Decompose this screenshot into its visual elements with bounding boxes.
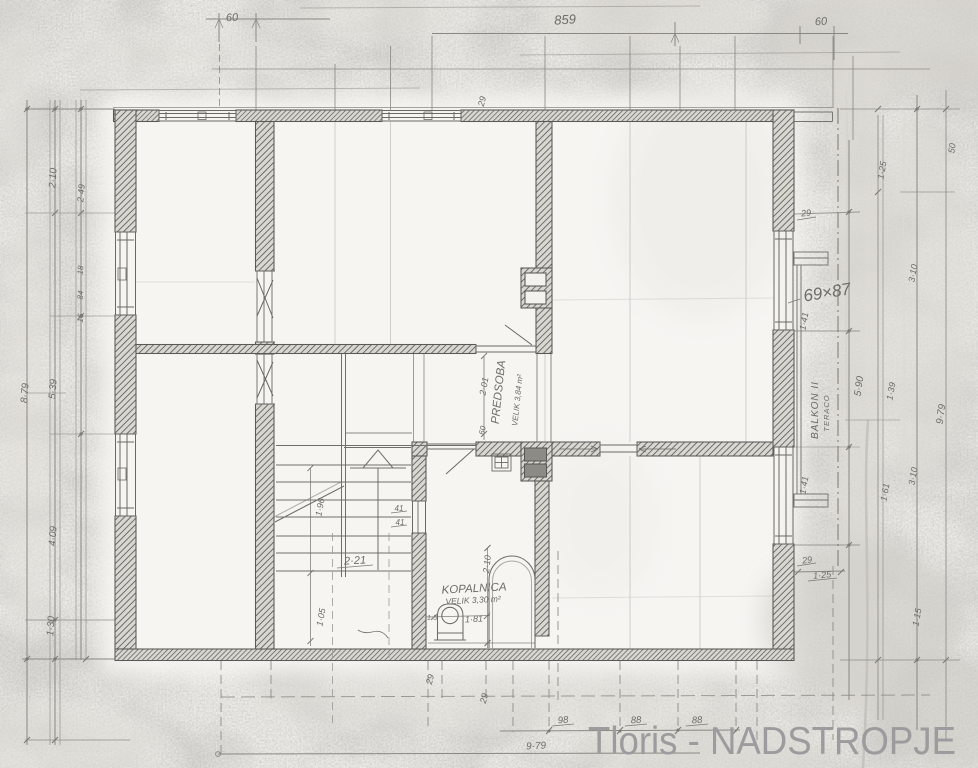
svg-text:2·49: 2·49: [75, 184, 87, 204]
svg-text:60: 60: [226, 12, 240, 25]
svg-text:859: 859: [554, 11, 577, 27]
svg-text:Tloris - NADSTROPJE: Tloris - NADSTROPJE: [588, 720, 956, 763]
svg-text:1·5: 1·5: [427, 615, 437, 622]
svg-text:9·79: 9·79: [526, 740, 547, 752]
svg-text:BALKON II: BALKON II: [810, 381, 821, 439]
svg-text:1·81: 1·81: [465, 614, 484, 625]
svg-text:TERACO: TERACO: [822, 394, 831, 431]
svg-text:50: 50: [946, 142, 958, 154]
svg-text:16: 16: [76, 313, 86, 323]
svg-text:4·09: 4·09: [47, 525, 59, 546]
svg-text:8·79: 8·79: [19, 382, 31, 403]
svg-text:84: 84: [76, 290, 86, 300]
svg-text:2·10: 2·10: [47, 167, 59, 189]
svg-text:2·10: 2·10: [481, 555, 493, 575]
svg-text:1·30: 1·30: [45, 615, 57, 636]
svg-text:18: 18: [76, 265, 86, 275]
svg-text:5·39: 5·39: [47, 378, 59, 399]
svg-text:60: 60: [815, 16, 829, 29]
svg-text:29: 29: [800, 207, 812, 218]
